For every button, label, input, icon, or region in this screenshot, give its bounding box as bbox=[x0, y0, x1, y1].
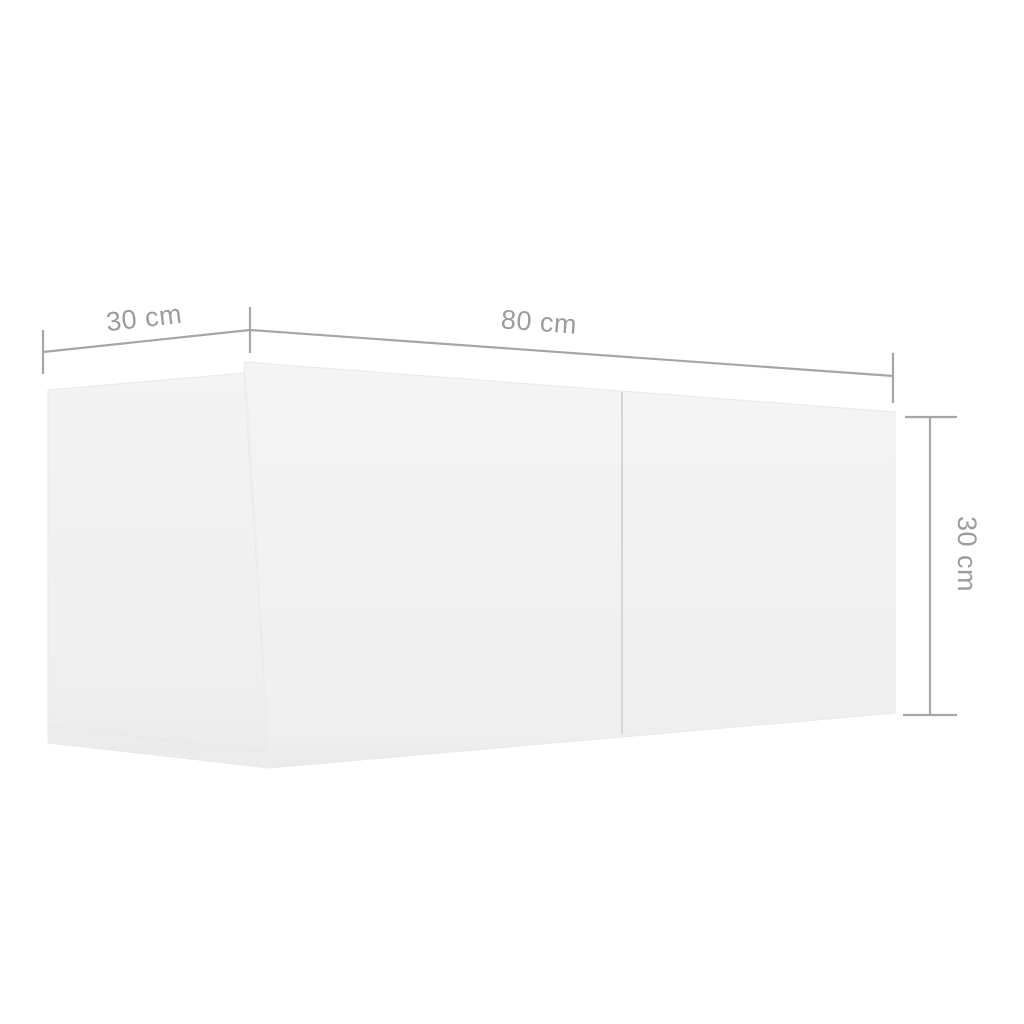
height-dimension-label: 30 cm bbox=[952, 516, 982, 592]
cabinet-side-panel bbox=[48, 373, 270, 768]
depth-dimension-line bbox=[43, 330, 250, 352]
depth-dimension: 30 cm bbox=[43, 299, 250, 374]
depth-dimension-label: 30 cm bbox=[105, 299, 184, 337]
height-dimension: 30 cm bbox=[903, 417, 982, 715]
width-dimension-label: 80 cm bbox=[500, 304, 578, 339]
cabinet bbox=[48, 362, 895, 768]
diagram-canvas: 30 cm 80 cm 30 cm bbox=[0, 0, 1024, 1024]
dimension-diagram: 30 cm 80 cm 30 cm bbox=[0, 0, 1024, 1024]
cabinet-front-panel bbox=[244, 362, 895, 768]
